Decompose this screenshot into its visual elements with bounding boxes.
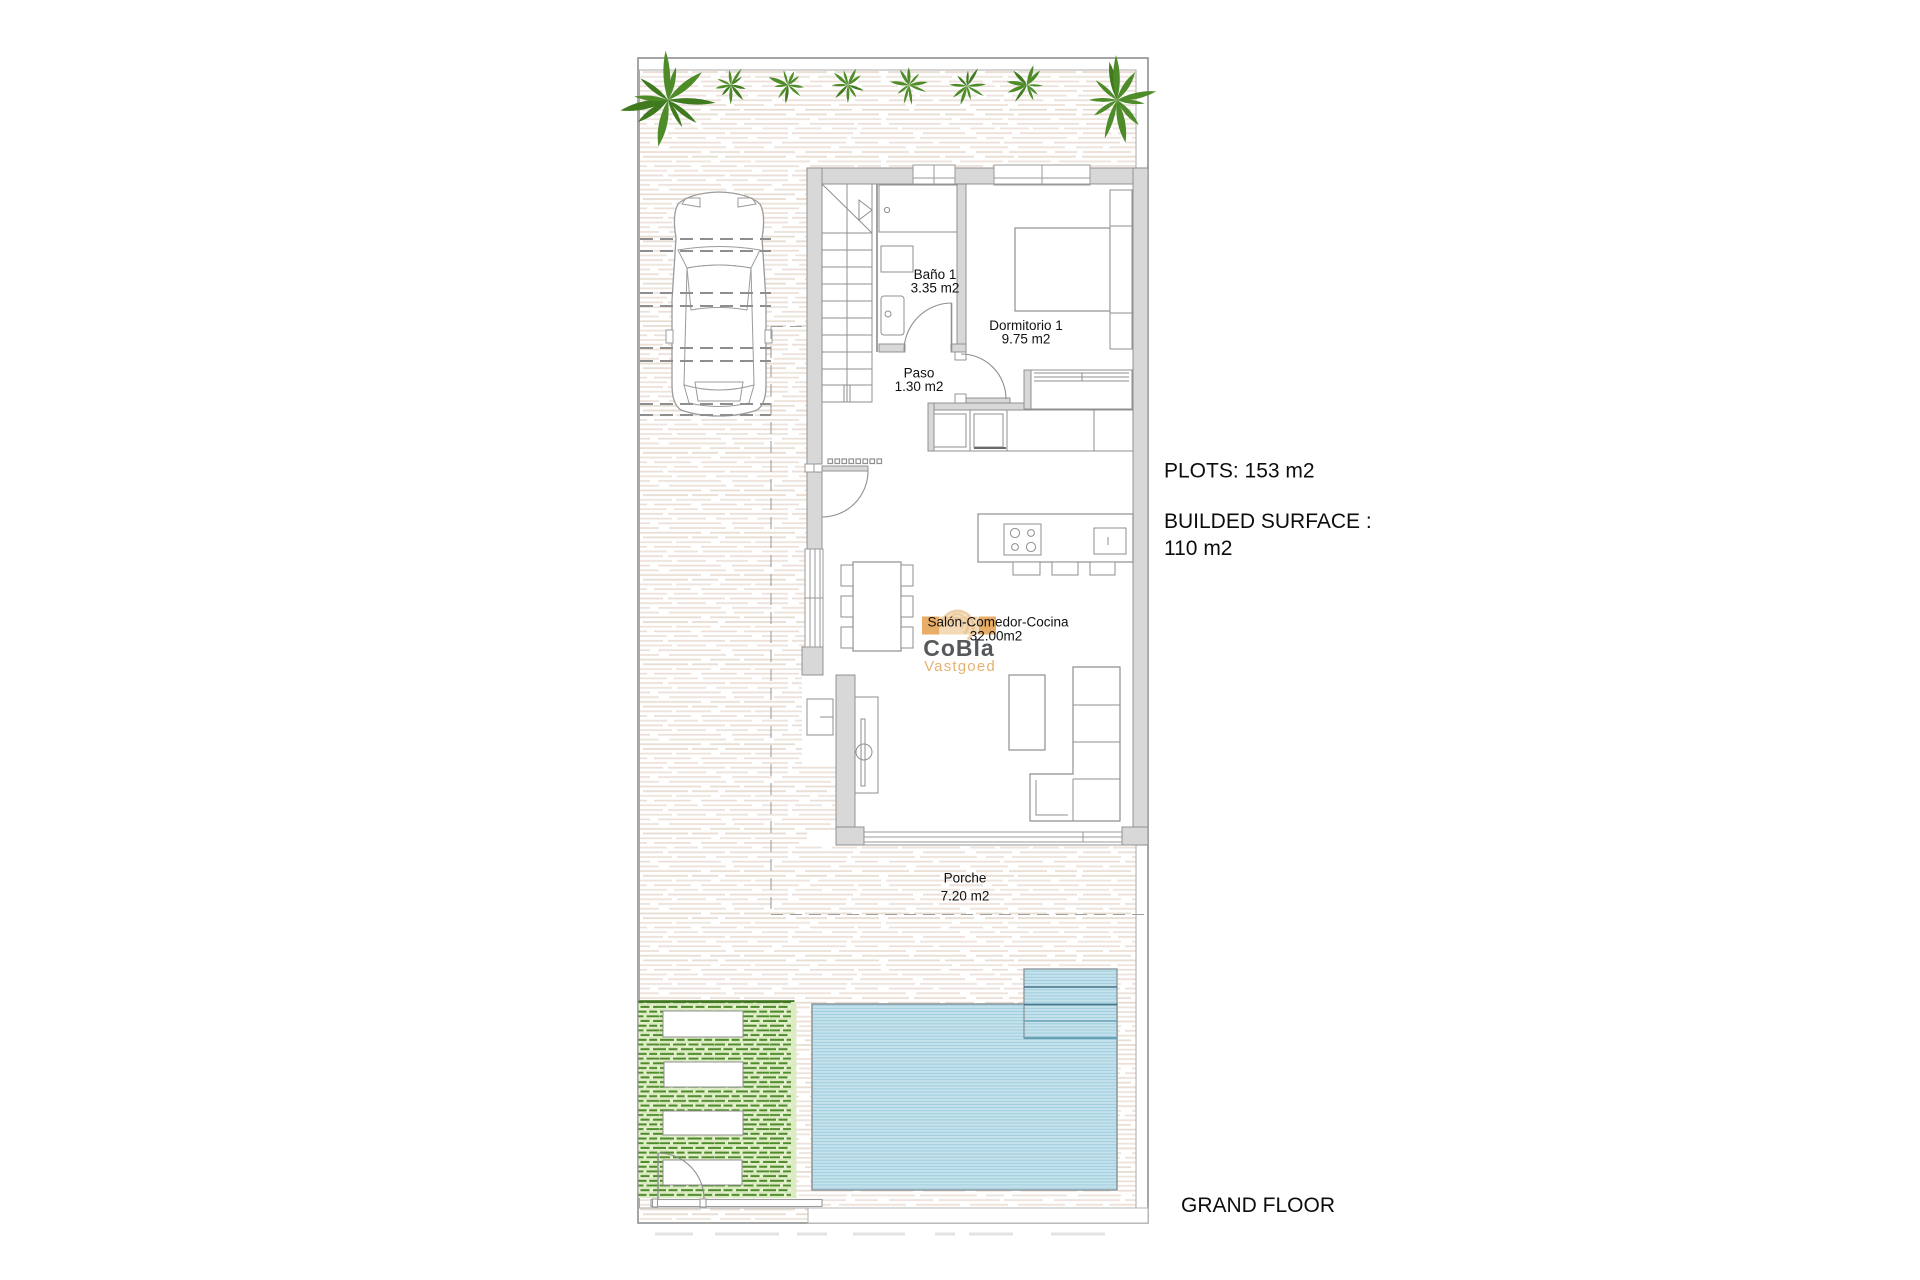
svg-text:3.35 m2: 3.35 m2 xyxy=(911,281,960,296)
svg-text:7.20 m2: 7.20 m2 xyxy=(941,889,990,904)
svg-text:110 m2: 110 m2 xyxy=(1164,537,1233,560)
svg-text:PLOTS: 153 m2: PLOTS: 153 m2 xyxy=(1164,460,1315,483)
svg-text:GRAND FLOOR: GRAND FLOOR xyxy=(1181,1194,1335,1217)
svg-text:9.75 m2: 9.75 m2 xyxy=(1002,332,1051,347)
svg-text:BUILDED SURFACE :: BUILDED SURFACE : xyxy=(1164,510,1372,533)
svg-text:Porche: Porche xyxy=(944,871,987,886)
svg-text:1.30 m2: 1.30 m2 xyxy=(895,379,944,394)
svg-text:32.00m2: 32.00m2 xyxy=(970,629,1023,644)
svg-text:Salón-Comedor-Cocina: Salón-Comedor-Cocina xyxy=(927,615,1069,630)
svg-text:Vastgoed: Vastgoed xyxy=(924,658,996,675)
